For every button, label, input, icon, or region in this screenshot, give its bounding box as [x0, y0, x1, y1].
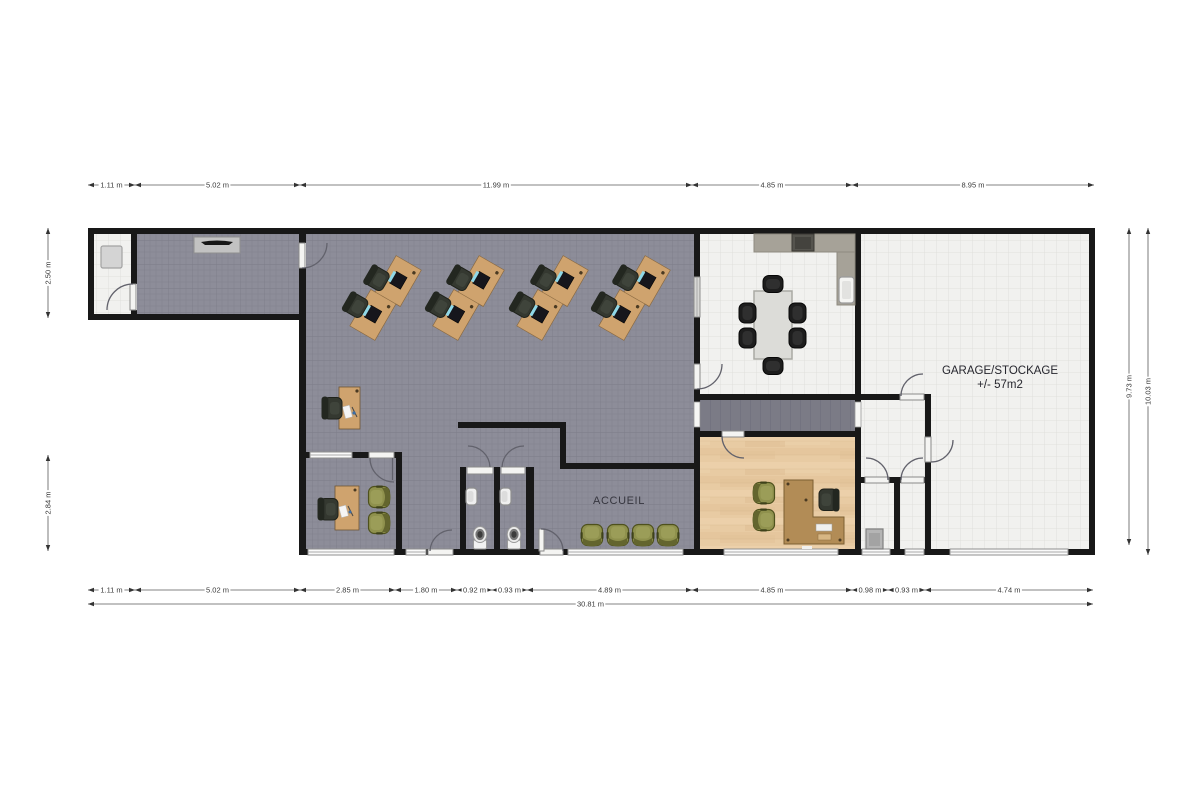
svg-text:11.99 m: 11.99 m: [483, 181, 510, 190]
svg-text:8.95 m: 8.95 m: [962, 181, 985, 190]
svg-text:30.81 m: 30.81 m: [577, 600, 604, 609]
svg-text:ACCUEIL: ACCUEIL: [593, 495, 645, 507]
svg-text:2.85 m: 2.85 m: [336, 586, 359, 595]
svg-text:+/- 57m2: +/- 57m2: [977, 379, 1023, 391]
svg-text:2.84 m: 2.84 m: [44, 492, 53, 515]
svg-text:2.50 m: 2.50 m: [44, 262, 53, 285]
svg-text:4.85 m: 4.85 m: [761, 586, 784, 595]
svg-text:5.02 m: 5.02 m: [206, 181, 229, 190]
svg-text:0.93 m: 0.93 m: [895, 586, 918, 595]
svg-text:9.73 m: 9.73 m: [1125, 375, 1134, 398]
svg-text:4.85 m: 4.85 m: [761, 181, 784, 190]
svg-text:4.89 m: 4.89 m: [598, 586, 621, 595]
svg-text:0.93 m: 0.93 m: [498, 586, 521, 595]
svg-text:5.02 m: 5.02 m: [206, 586, 229, 595]
svg-text:4.74 m: 4.74 m: [998, 586, 1021, 595]
svg-text:10.03 m: 10.03 m: [1144, 378, 1153, 405]
svg-text:1.11 m: 1.11 m: [100, 181, 122, 190]
svg-text:GARAGE/STOCKAGE: GARAGE/STOCKAGE: [942, 365, 1058, 377]
svg-text:0.92 m: 0.92 m: [463, 586, 486, 595]
svg-text:1.80 m: 1.80 m: [415, 586, 438, 595]
svg-text:1.11 m: 1.11 m: [100, 586, 122, 595]
svg-text:0.98 m: 0.98 m: [859, 586, 882, 595]
